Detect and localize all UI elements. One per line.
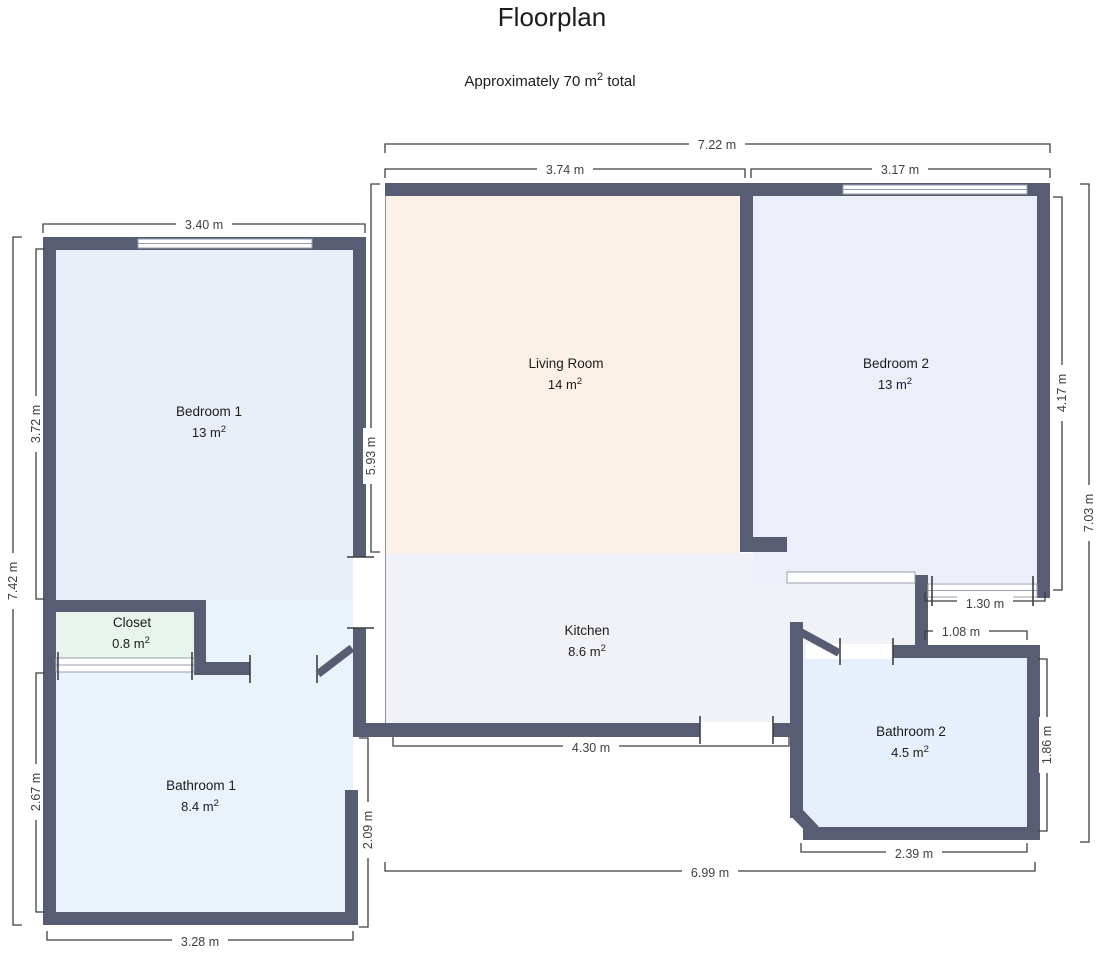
svg-text:1.30 m: 1.30 m [966, 597, 1004, 611]
closet-right-wall [194, 600, 206, 675]
svg-text:3.17 m: 3.17 m [881, 163, 919, 177]
bathroom1-door-stub-wall [206, 662, 250, 675]
bathroom2-floor [803, 658, 1027, 827]
bedroom2-passage-opening [787, 572, 915, 583]
svg-text:2.67 m: 2.67 m [29, 773, 43, 811]
dim-bedroom2-right: 4.17 m [1053, 197, 1069, 590]
kitchen-label: Kitchen [564, 623, 609, 638]
svg-text:4.30 m: 4.30 m [572, 741, 610, 755]
dim-living-room-top: 3.74 m [385, 162, 745, 178]
svg-text:3.40 m: 3.40 m [185, 218, 223, 232]
svg-text:1.86 m: 1.86 m [1040, 726, 1054, 764]
bathroom2-top-wall [893, 645, 1040, 658]
svg-text:7.03 m: 7.03 m [1082, 494, 1096, 532]
bathroom2-bottom-wall [803, 827, 1040, 840]
left-outer-wall [43, 237, 56, 925]
bedroom1-label: Bedroom 1 [176, 404, 242, 419]
svg-text:5.93 m: 5.93 m [364, 437, 378, 475]
bathroom2-label: Bathroom 2 [876, 724, 946, 739]
living-room-label: Living Room [528, 356, 603, 371]
right-outer-wall [1037, 196, 1050, 598]
svg-text:3.28 m: 3.28 m [181, 935, 219, 949]
floorplan-drawing: Floorplan Approximately 70 m2 total [0, 0, 1104, 957]
svg-text:7.42 m: 7.42 m [6, 562, 20, 600]
bathroom1-bottom-wall [43, 912, 358, 925]
closet-top-wall [43, 600, 206, 612]
bathroom2-left-wall [790, 622, 803, 818]
dim-right-overall: 7.03 m [1080, 184, 1096, 842]
svg-text:3.72 m: 3.72 m [29, 405, 43, 443]
dim-bottom-overall: 6.99 m [385, 862, 1035, 880]
bathroom1-label: Bathroom 1 [166, 778, 236, 793]
dim-bedroom2-top: 3.17 m [751, 162, 1050, 178]
closet-area: 0.8 m2 [112, 635, 150, 651]
bathroom2-right-wall [1027, 645, 1040, 840]
kitchen-floor [385, 553, 790, 723]
svg-text:1.08 m: 1.08 m [942, 625, 980, 639]
left-unit-right-wall-upper [353, 237, 366, 557]
dim-top-overall: 7.22 m [385, 137, 1050, 153]
bathroom1-right-wall [345, 790, 358, 925]
left-unit-right-wall-mid [353, 628, 366, 737]
svg-text:4.17 m: 4.17 m [1055, 374, 1069, 412]
floorplan-page: Floorplan Approximately 70 m2 total [0, 0, 1104, 957]
bathroom2-area: 4.5 m2 [891, 744, 929, 760]
svg-text:2.09 m: 2.09 m [361, 811, 375, 849]
dim-bedroom1-left: 3.72 m [28, 249, 45, 599]
dim-bathroom2-bottom: 2.39 m [801, 843, 1027, 861]
dim-bathroom1-right: 2.09 m [359, 738, 375, 927]
kitchen-area: 8.6 m2 [568, 643, 606, 659]
bedroom2-window [843, 185, 1027, 194]
bedroom1-window [138, 239, 312, 248]
dim-bathroom2-top: 1.08 m [925, 624, 1027, 640]
living-bedroom2-divider-wall [740, 196, 753, 552]
bathroom1-area: 8.4 m2 [181, 798, 219, 814]
svg-text:3.74 m: 3.74 m [546, 163, 584, 177]
closet-label: Closet [113, 615, 152, 630]
living-room-floor [385, 196, 740, 553]
dim-left-overall: 7.42 m [5, 237, 22, 925]
page-subtitle: Approximately 70 m2 total [464, 71, 635, 90]
svg-text:7.22 m: 7.22 m [698, 138, 736, 152]
svg-text:2.39 m: 2.39 m [895, 847, 933, 861]
dim-kitchen-bottom: 4.30 m [393, 737, 789, 755]
bedroom2-label: Bedroom 2 [863, 356, 929, 371]
divider-bottom-stub [740, 537, 787, 552]
dim-bedroom1-top: 3.40 m [43, 217, 365, 233]
dim-bathroom1-bottom: 3.28 m [47, 931, 353, 949]
page-title: Floorplan [498, 2, 606, 32]
dim-bathroom2-right: 1.86 m [1038, 659, 1054, 831]
dim-bathroom1-left: 2.67 m [28, 673, 45, 912]
svg-text:6.99 m: 6.99 m [691, 866, 729, 880]
